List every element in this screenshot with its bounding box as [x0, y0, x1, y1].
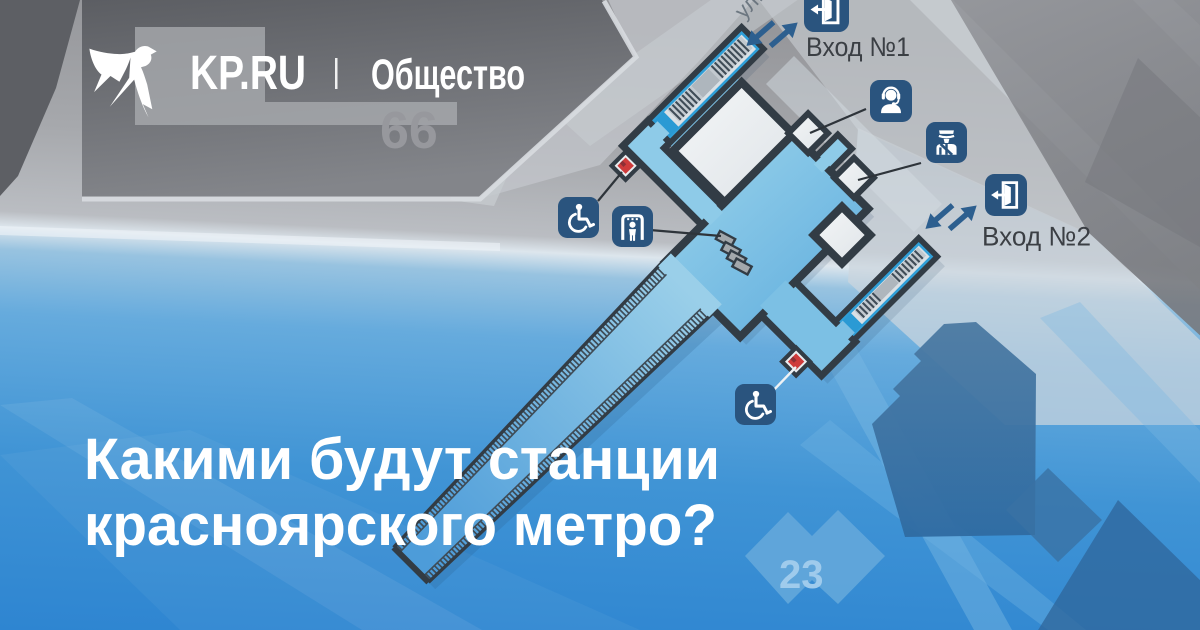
svg-text:66: 66 [380, 102, 438, 160]
svg-text:красноярского метро?: красноярского метро? [84, 493, 717, 558]
svg-text:23: 23 [779, 553, 824, 597]
svg-text:Общество: Общество [371, 51, 525, 99]
svg-text:KP.RU: KP.RU [190, 47, 306, 100]
svg-text:Вход №2: Вход №2 [982, 222, 1091, 252]
svg-text:Какими будут станции: Какими будут станции [84, 427, 720, 492]
svg-text:Вход №1: Вход №1 [806, 32, 910, 62]
